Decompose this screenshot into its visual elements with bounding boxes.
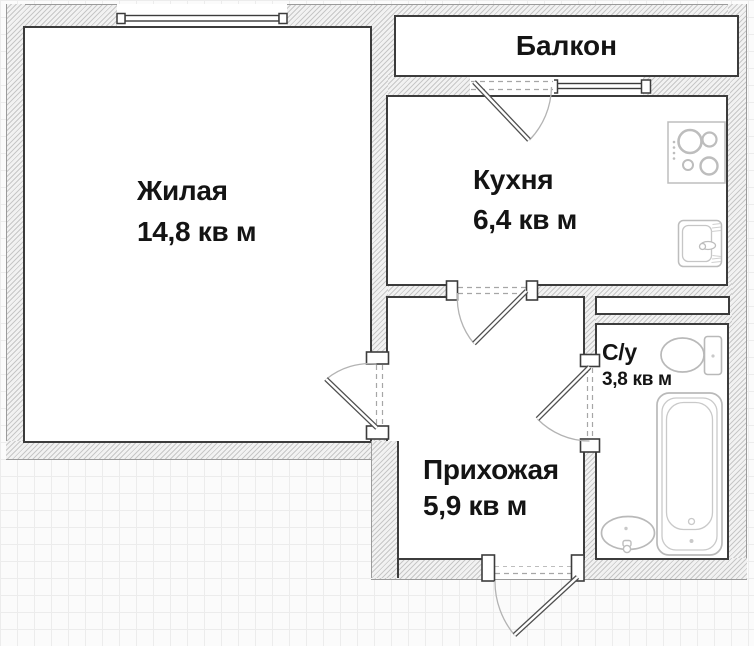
kitchen-name: Кухня: [473, 160, 577, 200]
balcony-label: Балкон: [516, 30, 617, 62]
hallway-label: Прихожая 5,9 кв м: [423, 452, 559, 524]
wall-hall-left-column: [371, 441, 399, 578]
duct-shaft: [595, 296, 730, 315]
kitchen-area: 6,4 кв м: [473, 200, 577, 240]
hallway-name: Прихожая: [423, 452, 559, 488]
room-balcony: Балкон: [394, 15, 739, 77]
hallway-area: 5,9 кв м: [423, 488, 559, 524]
wall-kitchen-top: [388, 75, 730, 97]
bathroom-label: С/у 3,8 кв м: [602, 338, 672, 394]
living-room-label: Жилая 14,8 кв м: [137, 170, 256, 252]
entrance-door-leaf: [515, 577, 578, 635]
living-room-area: 14,8 кв м: [137, 211, 256, 252]
living-room-name: Жилая: [137, 170, 256, 211]
bathroom-name: С/у: [602, 338, 672, 366]
wall-bottom: [371, 558, 747, 580]
entrance-door-arc: [495, 581, 515, 635]
wall-living-bottom: [6, 441, 399, 460]
bathroom-area: 3,8 кв м: [602, 366, 672, 394]
floor-plan: Балкон: [0, 0, 754, 646]
kitchen-label: Кухня 6,4 кв м: [473, 160, 577, 240]
